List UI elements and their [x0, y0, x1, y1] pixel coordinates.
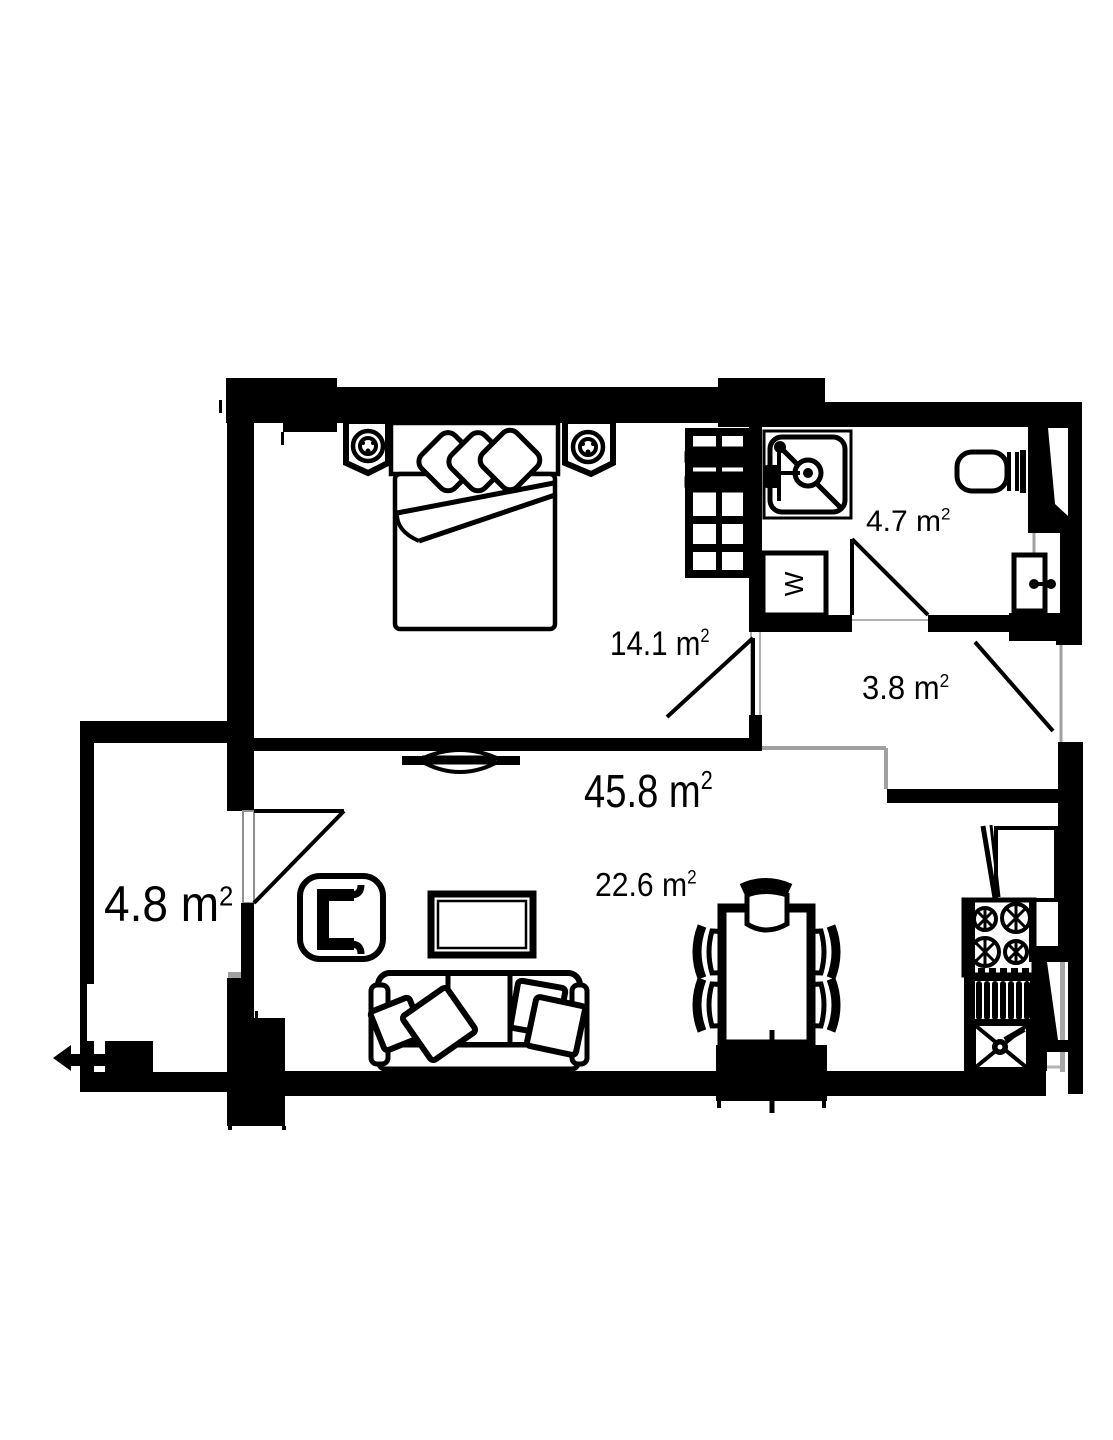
- svg-text:22.6 m2: 22.6 m2: [595, 866, 697, 904]
- svg-text:14.1 m2: 14.1 m2: [610, 624, 710, 662]
- svg-text:W: W: [779, 571, 809, 596]
- svg-text:4.7 m2: 4.7 m2: [866, 505, 951, 539]
- svg-text:3.8 m2: 3.8 m2: [862, 669, 949, 706]
- svg-text:45.8 m2: 45.8 m2: [584, 766, 713, 817]
- svg-text:4.8 m2: 4.8 m2: [104, 877, 233, 932]
